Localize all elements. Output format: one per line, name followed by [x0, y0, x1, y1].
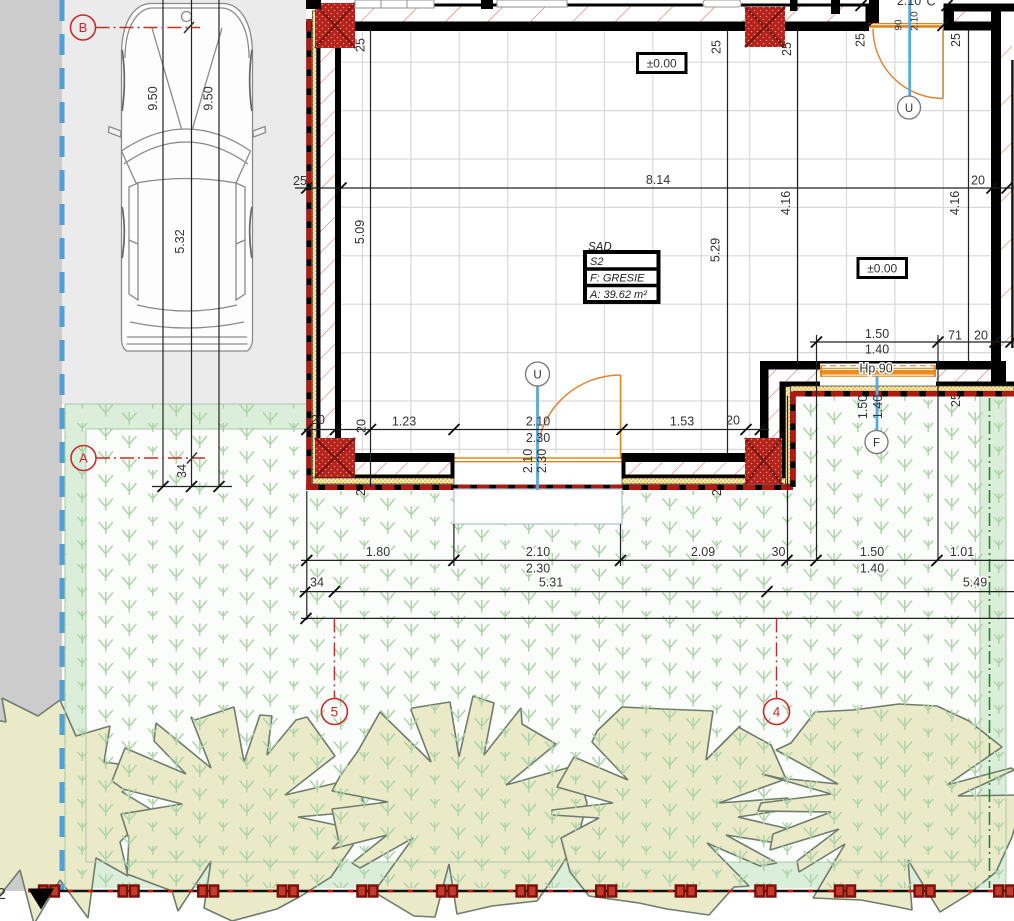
svg-text:2.10: 2.10: [521, 449, 535, 473]
svg-text:2.30: 2.30: [535, 449, 549, 473]
svg-text:1.50: 1.50: [860, 545, 884, 559]
svg-text:±0.00: ±0.00: [867, 262, 897, 276]
svg-text:2.10: 2.10: [526, 415, 550, 429]
svg-text:C: C: [926, 0, 935, 9]
svg-text:S2: S2: [590, 256, 603, 268]
svg-text:5.29: 5.29: [709, 238, 723, 262]
svg-text:5.32: 5.32: [173, 229, 187, 253]
svg-text:2.10: 2.10: [526, 545, 550, 559]
svg-text:A: A: [79, 451, 88, 466]
svg-text:1.80: 1.80: [366, 545, 390, 559]
svg-text:A: 39.62 m²: A: 39.62 m²: [589, 289, 647, 301]
svg-text:2.10: 2.10: [910, 11, 921, 31]
svg-text:34: 34: [310, 576, 324, 590]
svg-text:2.30: 2.30: [526, 431, 550, 445]
svg-text:±0.00: ±0.00: [647, 57, 677, 71]
svg-text:U: U: [533, 370, 541, 382]
svg-text:4.16: 4.16: [779, 191, 793, 215]
svg-text:5: 5: [331, 705, 339, 720]
svg-text:25: 25: [710, 40, 724, 54]
svg-text:2: 2: [0, 886, 6, 903]
svg-text:4.16: 4.16: [948, 191, 962, 215]
svg-text:9.50: 9.50: [146, 86, 160, 110]
svg-text:20: 20: [726, 414, 740, 428]
svg-text:1.40: 1.40: [871, 395, 885, 419]
svg-text:5.31: 5.31: [539, 576, 563, 590]
svg-text:5.49: 5.49: [963, 576, 987, 590]
svg-text:25: 25: [354, 38, 368, 52]
svg-text:20: 20: [311, 413, 325, 427]
svg-text:1.40: 1.40: [865, 343, 889, 357]
svg-text:1.40: 1.40: [860, 562, 884, 576]
svg-text:90: 90: [894, 19, 905, 31]
svg-text:1.50: 1.50: [865, 327, 889, 341]
svg-text:25: 25: [854, 33, 868, 47]
svg-text:30: 30: [772, 545, 786, 559]
svg-text:20: 20: [355, 419, 369, 433]
svg-text:20: 20: [971, 174, 985, 188]
svg-text:8.14: 8.14: [646, 173, 670, 187]
svg-text:25: 25: [293, 174, 307, 188]
svg-text:20: 20: [974, 329, 988, 343]
svg-text:F: F: [873, 438, 880, 450]
svg-text:25: 25: [780, 42, 794, 56]
svg-text:2.10: 2.10: [897, 0, 921, 8]
svg-text:71: 71: [948, 329, 962, 343]
svg-text:9.50: 9.50: [202, 86, 216, 110]
svg-text:1.23: 1.23: [392, 415, 416, 429]
svg-text:2.09: 2.09: [691, 545, 715, 559]
svg-text:1.01: 1.01: [950, 545, 974, 559]
svg-text:25: 25: [949, 33, 963, 47]
svg-text:U: U: [905, 103, 913, 115]
svg-text:Hp 90: Hp 90: [859, 362, 892, 376]
svg-text:5.09: 5.09: [353, 220, 367, 244]
svg-text:1.53: 1.53: [670, 415, 694, 429]
svg-text:B: B: [79, 20, 88, 35]
svg-text:1.50: 1.50: [856, 395, 870, 419]
svg-text:2.30: 2.30: [526, 562, 550, 576]
svg-text:34: 34: [175, 464, 189, 478]
svg-text:4: 4: [773, 705, 781, 720]
svg-text:F: GRESIE: F: GRESIE: [590, 273, 645, 285]
